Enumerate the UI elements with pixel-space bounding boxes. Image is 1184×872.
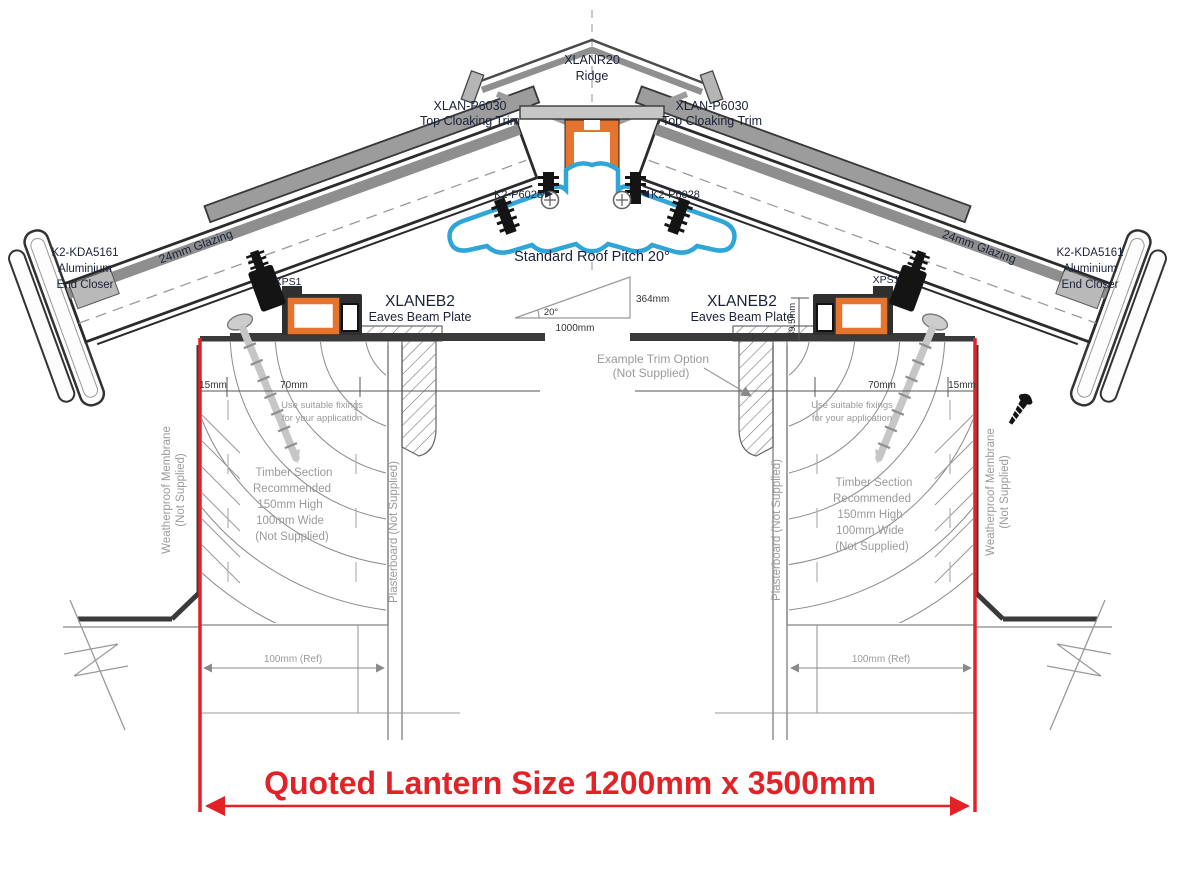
timber-note2-right: Recommended: [833, 493, 911, 505]
timber-note3-left: 150mm High: [257, 499, 322, 511]
roof-pitch-label: Standard Roof Pitch 20°: [514, 249, 670, 265]
eaves-beam-part-left: XLANEB2: [385, 293, 455, 310]
eaves-thermal-break-right: [839, 301, 884, 331]
break-mark-left: [64, 644, 128, 676]
wall-ref-right: 100mm (Ref): [852, 654, 910, 665]
eaves-beam-name-right: Eaves Beam Plate: [691, 310, 794, 324]
technical-drawing-page: 24mm Glazing 24mm Glazing: [0, 0, 1184, 872]
cloaking-trim-part-right: XLAN-P6030: [676, 99, 749, 113]
ridge-part-label: XLANR20: [564, 53, 620, 67]
fixings-note2-right: for your application: [812, 413, 892, 424]
end-closer-part-right: K2-KDA5161: [1056, 247, 1123, 259]
ridge-fixing-label-left: K2-P6028: [494, 189, 543, 201]
cloaking-trim-name-left: Top Cloaking Trim: [420, 114, 520, 128]
end-closer-line3-left: End Closer: [57, 279, 114, 291]
membrane-note1-right: Weatherproof Membrane: [985, 428, 997, 556]
timber-note3-right: 150mm High: [837, 509, 902, 521]
wall-ref-left: 100mm (Ref): [264, 654, 322, 665]
cloaking-trim-name-right: Top Cloaking Trim: [662, 114, 762, 128]
timber-note5-left: (Not Supplied): [255, 531, 329, 543]
cloaking-trim-part-left: XLAN-P6030: [434, 99, 507, 113]
end-closer-line3-right: End Closer: [1062, 279, 1119, 291]
membrane-note1-left: Weatherproof Membrane: [161, 426, 173, 554]
pitch-rise-label: 364mm: [636, 294, 669, 305]
dim-edge-right: 15mm: [948, 380, 976, 391]
timber-note4-right: 100mm Wide: [836, 525, 904, 537]
dim-beam-height-label: 39.5mm: [787, 303, 798, 337]
end-closer-part-left: K2-KDA5161: [51, 247, 118, 259]
trim-option-note1: Example Trim Option: [597, 352, 709, 366]
plasterboard-note-left: Plasterboard (Not Supplied): [388, 461, 400, 603]
end-closer-line2-left: Aluminium: [58, 263, 112, 275]
membrane-note2-right: (Not Supplied): [999, 455, 1011, 529]
dim-zone-left: 70mm: [280, 380, 308, 391]
ridge-fixing-label-right: K2-P6028: [651, 189, 700, 201]
timber-note4-left: 100mm Wide: [256, 515, 324, 527]
dim-edge-left: 15mm: [199, 380, 227, 391]
break-mark-right: [1047, 644, 1111, 676]
ridge-name-label: Ridge: [576, 69, 609, 83]
xps1-label-left: XPS1: [275, 276, 302, 288]
pitch-angle-label: 20°: [544, 307, 559, 318]
xps1-label-right: XPS1: [873, 274, 900, 286]
eaves-beam-part-right: XLANEB2: [707, 293, 777, 310]
dim-zone-right: 70mm: [868, 380, 896, 391]
screw-icon: [1004, 391, 1035, 428]
quoted-size-label: Quoted Lantern Size 1200mm x 3500mm: [264, 765, 876, 801]
end-closer-line2-right: Aluminium: [1063, 263, 1117, 275]
timber-note1-left: Timber Section: [256, 467, 333, 479]
eaves-thermal-break-left: [291, 301, 336, 331]
roof-lantern-section-drawing: 24mm Glazing 24mm Glazing: [0, 0, 1184, 872]
pitch-run-label: 1000mm: [556, 323, 595, 334]
timber-note1-right: Timber Section: [836, 477, 913, 489]
timber-note2-left: Recommended: [253, 483, 331, 495]
membrane-note2-left: (Not Supplied): [175, 453, 187, 527]
fixings-note2-left: for your application: [282, 413, 362, 424]
roof-deck-right: [975, 592, 1112, 730]
fixings-note1-right: Use suitable fixings: [811, 400, 893, 411]
trim-option-note2: (Not Supplied): [613, 366, 690, 380]
pitch-triangle: [515, 277, 630, 318]
plasterboard-note-right: Plasterboard (Not Supplied): [771, 459, 783, 601]
timber-note5-right: (Not Supplied): [835, 541, 909, 553]
fixings-note1-left: Use suitable fixings: [281, 400, 363, 411]
eaves-beam-name-left: Eaves Beam Plate: [369, 310, 472, 324]
roof-deck-left: [63, 592, 200, 730]
